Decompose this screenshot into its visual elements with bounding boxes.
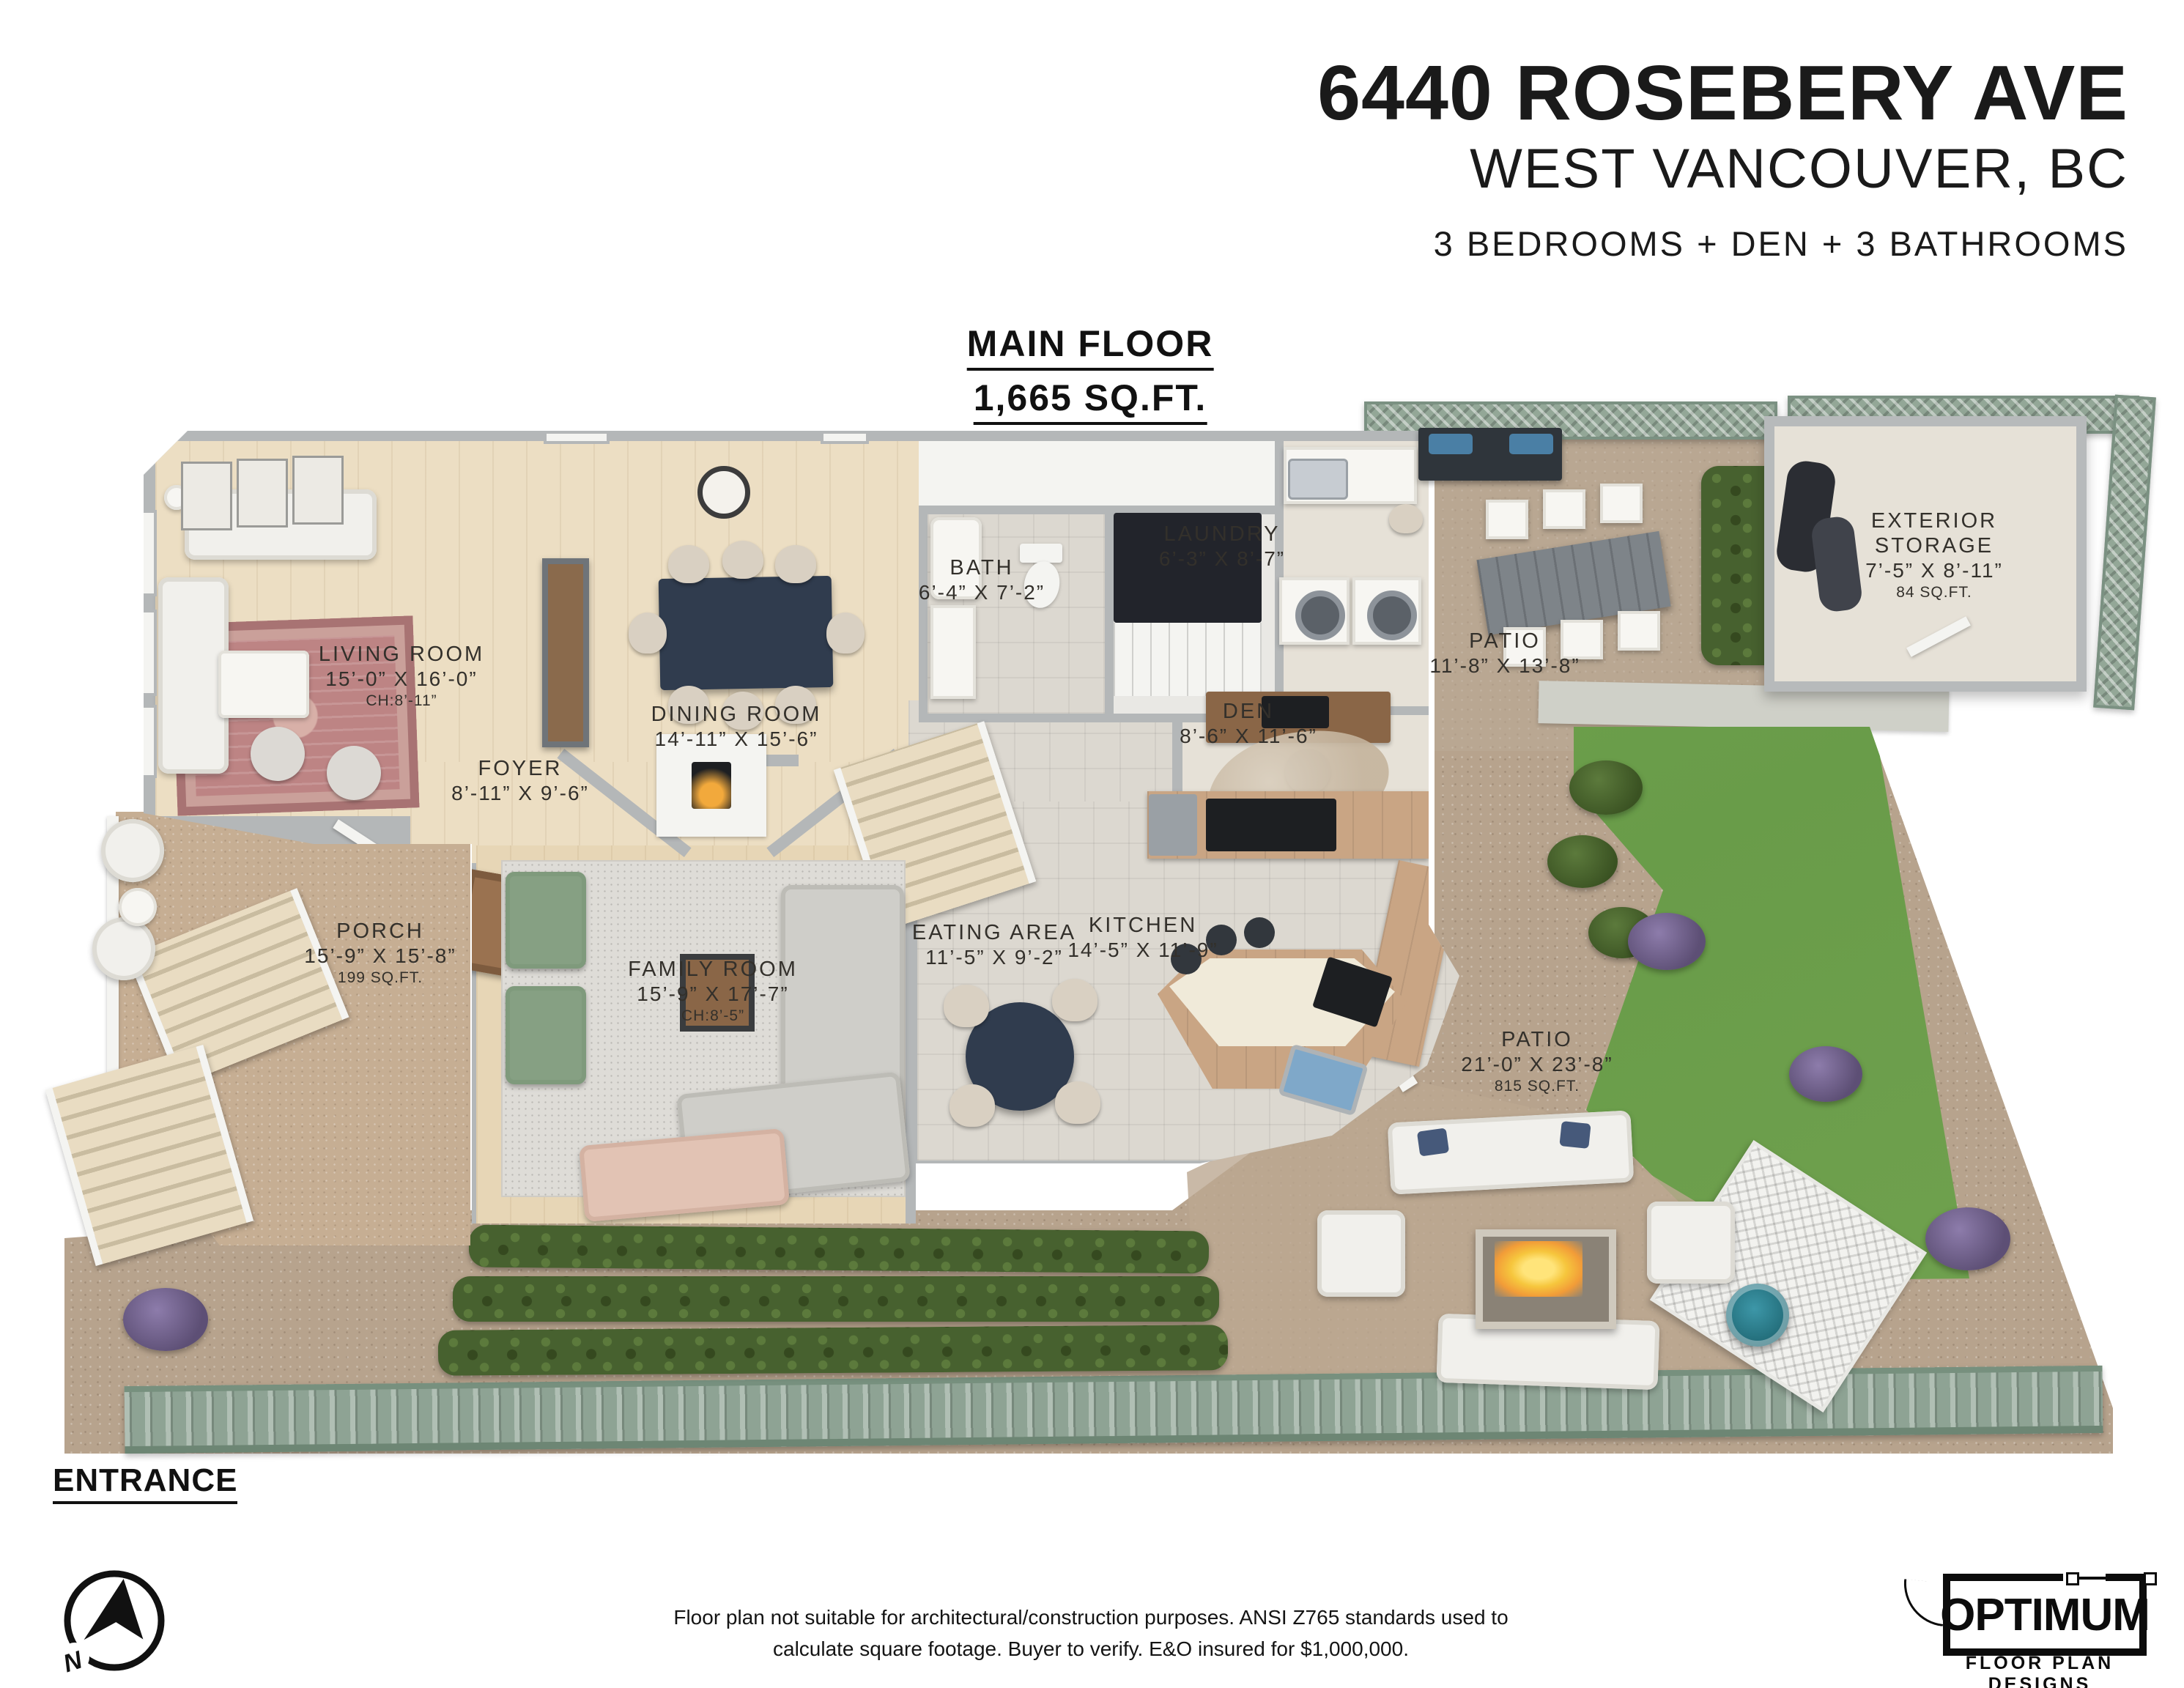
bed-bath-summary: 3 BEDROOMS + DEN + 3 BATHROOMS bbox=[1317, 223, 2128, 264]
room-label-eating-area: EATING AREA 11’-5” X 9’-2” bbox=[912, 920, 1076, 970]
bbq-lid-2 bbox=[1509, 434, 1553, 454]
bbq-lid-1 bbox=[1429, 434, 1473, 454]
logo-dimension-line-icon bbox=[2069, 1577, 2151, 1580]
dining-chair-7 bbox=[629, 612, 667, 654]
patio-chair-3 bbox=[1600, 484, 1643, 523]
hedge-row-1 bbox=[469, 1225, 1209, 1274]
floor-title: MAIN FLOOR 1,665 SQ.FT. bbox=[967, 322, 1214, 431]
eating-chair-1 bbox=[944, 985, 989, 1027]
coffee-table bbox=[218, 651, 309, 718]
entrance-label: ENTRANCE bbox=[53, 1462, 237, 1504]
hanging-chair-1 bbox=[101, 819, 164, 882]
bush-purple-1 bbox=[1628, 913, 1706, 970]
bar-stool-3 bbox=[1244, 917, 1275, 948]
room-label-living-room: LIVING ROOM 15’-0” X 16’-0” CH:8’-11” bbox=[319, 642, 484, 711]
window-left-1 bbox=[141, 510, 157, 596]
room-label-patio-lower: PATIO 21’-0” X 23’-8” 815 SQ.FT. bbox=[1461, 1027, 1613, 1096]
barrel-chair-2 bbox=[327, 746, 381, 800]
wall-art-2 bbox=[237, 459, 288, 527]
north-compass-icon: N bbox=[42, 1562, 182, 1687]
room-label-den: DEN 8’-6” X 11’-6” bbox=[1180, 699, 1317, 749]
window-top-1 bbox=[544, 431, 610, 444]
bath-vanity bbox=[930, 605, 976, 699]
floor-area: 1,665 SQ.FT. bbox=[974, 377, 1207, 425]
kitchen-range bbox=[1206, 799, 1336, 851]
hedge-row-3 bbox=[438, 1325, 1228, 1376]
disclaimer-line-2: calculate square footage. Buyer to verif… bbox=[673, 1633, 1508, 1665]
outdoor-armchair-right bbox=[1647, 1202, 1735, 1284]
room-label-family-room: FAMILY ROOM 15’-9” X 17’-7” CH:8’-5” bbox=[628, 957, 798, 1026]
window-top-2 bbox=[821, 431, 869, 444]
bar-cabinet bbox=[542, 558, 589, 747]
eating-chair-3 bbox=[950, 1084, 995, 1127]
title-block: 6440 ROSEBERY AVE WEST VANCOUVER, BC 3 B… bbox=[1317, 54, 2128, 264]
page-title: 6440 ROSEBERY AVE bbox=[1317, 54, 2128, 132]
room-label-bath: BATH 6’-4” X 7’-2” bbox=[919, 555, 1045, 605]
subtitle-city: WEST VANCOUVER, BC bbox=[1317, 132, 2128, 207]
patio-chair-1 bbox=[1486, 500, 1528, 539]
logo-dimension-end-right-icon bbox=[2144, 1572, 2157, 1585]
logo-tagline: FLOOR PLAN DESIGNS bbox=[1937, 1653, 2142, 1688]
washer-door bbox=[1295, 591, 1345, 640]
wall-art-3 bbox=[292, 456, 344, 525]
disclaimer: Floor plan not suitable for architectura… bbox=[673, 1602, 1508, 1665]
dining-chair-1 bbox=[668, 545, 709, 583]
room-label-exterior-storage: EXTERIOR STORAGE 7’-5” X 8’-11” 84 SQ.FT… bbox=[1843, 508, 2026, 602]
logo-dimension-end-left-icon bbox=[2066, 1572, 2079, 1585]
closet-doors bbox=[1114, 623, 1262, 696]
dining-chair-3 bbox=[775, 545, 816, 583]
dining-chair-2 bbox=[722, 541, 763, 579]
wall-band-hallway bbox=[919, 441, 1275, 507]
room-label-dining-room: DINING ROOM 14’-11” X 15’-6” bbox=[651, 702, 822, 752]
window-left-2 bbox=[141, 610, 157, 696]
porch-side-table bbox=[119, 888, 157, 926]
ceramic-stool-teal bbox=[1726, 1284, 1789, 1347]
logo-door-swing-icon bbox=[1900, 1579, 1947, 1626]
armchair-green-2 bbox=[506, 986, 586, 1084]
bush-purple-3 bbox=[1925, 1207, 2010, 1270]
optimum-logo: OPTIMUM bbox=[1943, 1574, 2147, 1656]
wall-clock bbox=[697, 466, 750, 519]
fence-lattice-storage-right bbox=[2093, 395, 2156, 711]
room-label-foyer: FOYER 8’-11” X 9’-6” bbox=[451, 756, 589, 806]
navy-pillow-1 bbox=[1417, 1128, 1449, 1156]
navy-pillow-2 bbox=[1559, 1121, 1591, 1149]
laundry-basket bbox=[1389, 504, 1423, 533]
kitchen-fridge bbox=[1149, 794, 1197, 856]
window-left-3 bbox=[141, 705, 157, 778]
room-label-kitchen: KITCHEN 14’-5” X 11’-9” bbox=[1067, 913, 1218, 963]
armchair-green-1 bbox=[506, 872, 586, 969]
dryer-door bbox=[1367, 591, 1417, 640]
room-label-porch: PORCH 15’-9” X 15’-8” 199 SQ.FT. bbox=[304, 919, 456, 988]
floor-plan-page: 6440 ROSEBERY AVE WEST VANCOUVER, BC 3 B… bbox=[0, 0, 2184, 1688]
floor-name: MAIN FLOOR bbox=[967, 322, 1214, 371]
bush-purple-4 bbox=[123, 1288, 208, 1351]
bush-lawn-1 bbox=[1569, 760, 1643, 815]
barrel-chair-1 bbox=[251, 727, 305, 781]
eating-chair-4 bbox=[1055, 1081, 1100, 1124]
bush-purple-2 bbox=[1789, 1046, 1862, 1102]
bush-lawn-2 bbox=[1547, 835, 1618, 888]
eating-chair-2 bbox=[1052, 979, 1097, 1021]
hanging-chair-2 bbox=[92, 917, 155, 980]
logo-wordmark: OPTIMUM bbox=[1940, 1589, 2150, 1641]
fire-pit-flame bbox=[1495, 1241, 1583, 1297]
patio-chair-2 bbox=[1543, 489, 1585, 529]
outdoor-armchair-left bbox=[1317, 1210, 1405, 1297]
hedge-row-2 bbox=[453, 1276, 1219, 1322]
fireplace-firebox bbox=[692, 762, 731, 809]
patio-chair-6 bbox=[1618, 611, 1660, 651]
dining-chair-8 bbox=[826, 612, 865, 654]
room-label-patio-upper: PATIO 11’-8” X 13’-8” bbox=[1429, 629, 1580, 678]
wall-art-1 bbox=[181, 462, 232, 530]
disclaimer-line-1: Floor plan not suitable for architectura… bbox=[673, 1602, 1508, 1633]
dining-table bbox=[659, 576, 834, 690]
room-label-laundry: LAUNDRY 6’-3” X 8’-7” bbox=[1159, 522, 1285, 571]
laundry-sink bbox=[1288, 459, 1348, 500]
